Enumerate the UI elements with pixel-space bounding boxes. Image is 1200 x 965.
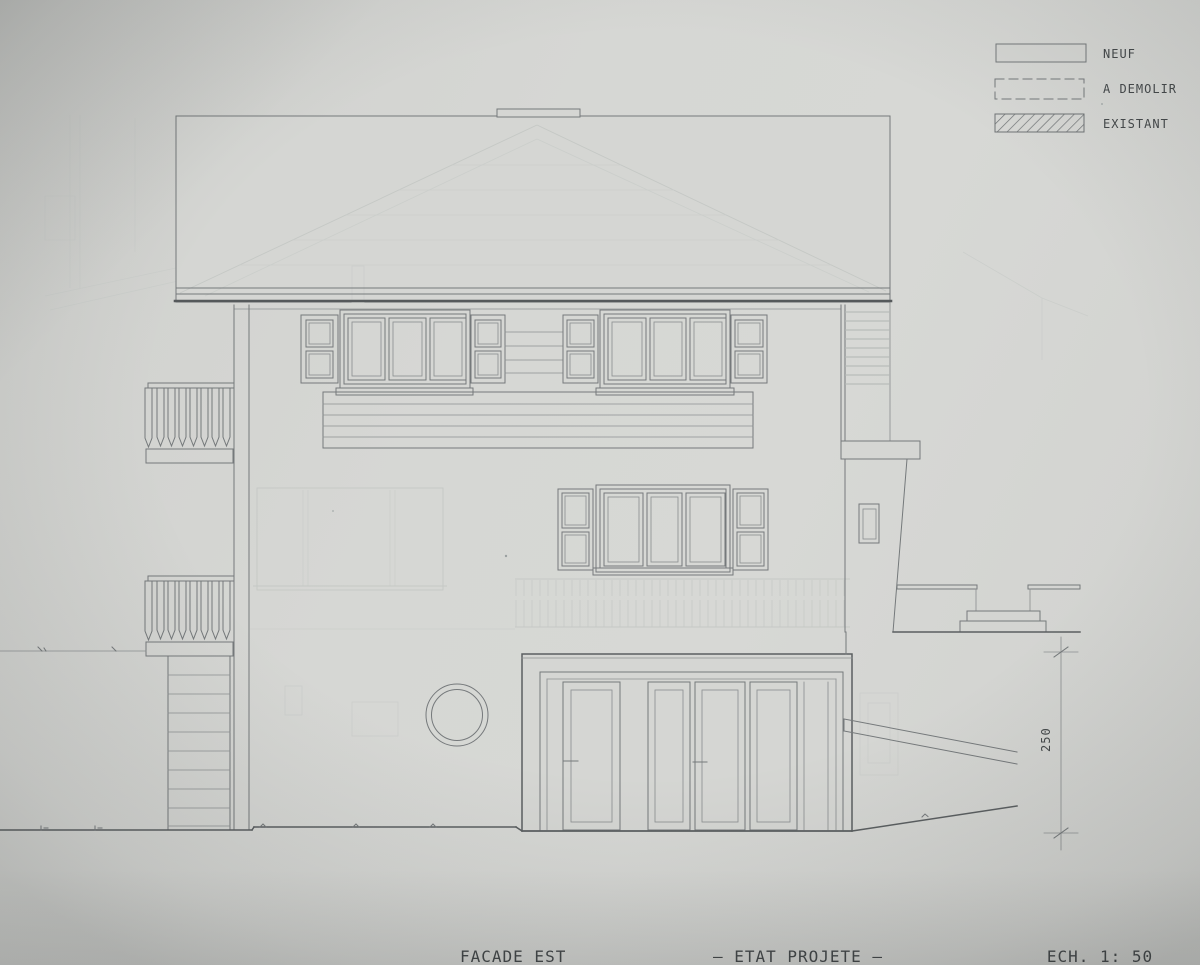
terrace-step	[960, 621, 1046, 632]
middle-window-group	[558, 485, 768, 575]
ramp	[844, 719, 1017, 764]
upper-window-right-group	[563, 310, 767, 395]
legend: NEUF A DEMOLIR EXISTANT	[995, 44, 1177, 132]
ghost-window	[253, 488, 447, 590]
photographed-blueprint: 250 NEUF A DEMOLIR EXISTANT FACADE EST —…	[0, 0, 1200, 965]
balcony-floor	[146, 449, 233, 463]
caption-title: FACADE EST	[460, 947, 566, 965]
ghost-lines-right	[860, 252, 1088, 775]
upper-window-band	[301, 310, 767, 395]
legend-label: NEUF	[1103, 47, 1136, 61]
upper-window-left-group	[301, 310, 505, 395]
porthole-window	[426, 684, 488, 746]
ghost-marks-wall	[285, 686, 398, 736]
swatch-solid	[996, 44, 1086, 62]
right-wing-siding	[845, 312, 890, 384]
ground-line	[0, 806, 1017, 831]
right-flue	[841, 441, 920, 654]
swatch-dashed	[995, 79, 1084, 99]
legend-item-a-demolir: A DEMOLIR	[995, 79, 1177, 99]
roof	[175, 109, 891, 309]
dimension-250: 250	[1039, 637, 1078, 850]
exterior-stair	[168, 656, 230, 830]
legend-label: A DEMOLIR	[1103, 82, 1177, 96]
ghost-balustrade	[250, 579, 850, 629]
balcony-floor	[146, 642, 233, 656]
right-terrace	[893, 585, 1080, 632]
facade-east-drawing: 250 NEUF A DEMOLIR EXISTANT FACADE EST —…	[0, 0, 1200, 965]
louver-panel	[505, 332, 563, 373]
ground-floor-entry	[522, 654, 852, 831]
ghost-lines-left	[45, 115, 178, 310]
siding-band	[323, 392, 753, 448]
flue-cap	[841, 441, 920, 459]
chimney-cap	[497, 109, 580, 117]
caption: FACADE EST — ETAT PROJETE — ECH. 1: 50	[460, 947, 1153, 965]
caption-scale: ECH. 1: 50	[1047, 947, 1153, 965]
dimension-value: 250	[1039, 727, 1053, 752]
balcony-lower	[145, 576, 234, 656]
balcony-handrail	[148, 576, 234, 581]
legend-label: EXISTANT	[1103, 117, 1169, 131]
terrace-step	[967, 611, 1040, 621]
level-leader-line	[0, 647, 146, 651]
roof-fascia	[176, 116, 890, 302]
caption-state: — ETAT PROJETE —	[713, 947, 883, 965]
terrace-rail	[1028, 585, 1080, 589]
balcony-handrail	[148, 383, 234, 388]
legend-item-neuf: NEUF	[996, 44, 1136, 62]
swatch-hatched	[995, 114, 1084, 132]
terrace-rail	[897, 585, 977, 589]
balcony-upper	[145, 383, 234, 463]
legend-item-existant: EXISTANT	[995, 114, 1169, 132]
